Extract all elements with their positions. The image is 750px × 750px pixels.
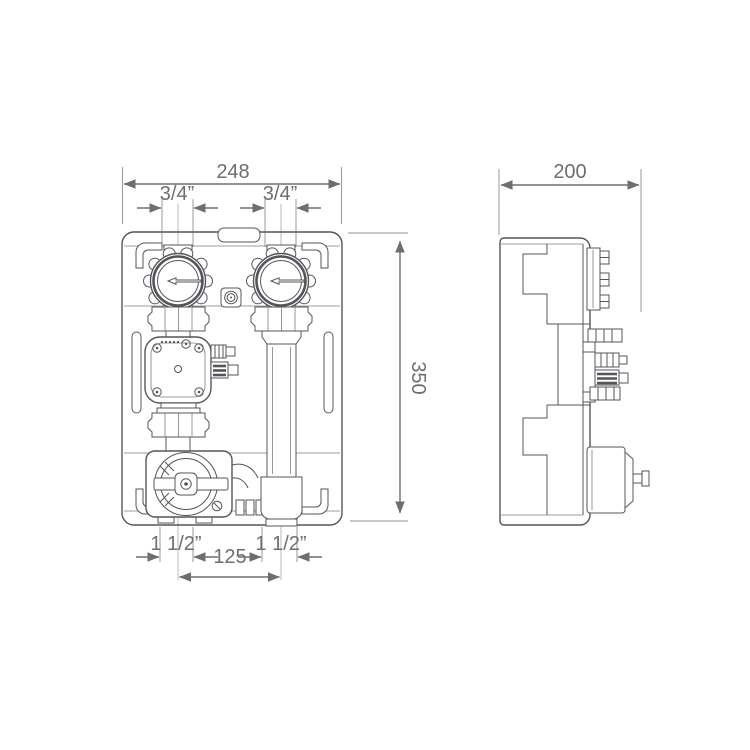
- corner-clip-bottom-right: [302, 489, 328, 514]
- ball-valve-left: [144, 245, 213, 314]
- dim-port-top-right-label: 3/4”: [263, 183, 297, 205]
- union-nut-middle: [148, 413, 209, 437]
- pump-terminal-upper: [211, 345, 235, 358]
- valve-cap-side: [587, 248, 609, 310]
- dim-port-bottom-left: 1 1/2”: [136, 527, 218, 562]
- pipe-elbow: [261, 477, 302, 519]
- side-view: 200: [499, 161, 649, 525]
- return-pipe: [261, 331, 302, 526]
- drawing-canvas: 248 3/4” 3/4” 350: [0, 0, 750, 750]
- insulation-casing-side: [500, 238, 590, 525]
- dim-port-top-left: 3/4”: [137, 183, 218, 247]
- slot-right: [324, 332, 333, 413]
- pump-inlet-pipe: [166, 437, 190, 451]
- pump-flange: [157, 403, 200, 413]
- handle-notch: [218, 228, 260, 242]
- shell-step-lower: [523, 405, 547, 515]
- mounting-screw: [221, 288, 241, 307]
- pump-terminal-lower: [211, 362, 238, 378]
- front-view: 248 3/4” 3/4” 350: [122, 161, 429, 580]
- dim-height-350: 350: [348, 233, 429, 521]
- dim-height-label: 350: [407, 361, 429, 394]
- mixing-valve: [146, 451, 232, 523]
- dim-width-248: 248: [123, 161, 342, 224]
- dim-port-bottom-right: 1 1/2”: [238, 527, 322, 562]
- dim-port-bottom-left-label: 1 1/2”: [150, 533, 201, 555]
- dim-port-spacing-label: 125: [213, 546, 246, 568]
- union-nut-top-right: [251, 307, 312, 331]
- pump-head-side: [583, 329, 628, 402]
- valve-outlet-bend: [232, 464, 262, 515]
- mixing-valve-side: [587, 447, 649, 513]
- technical-drawing: 248 3/4” 3/4” 350: [0, 0, 750, 750]
- dim-depth-label: 200: [553, 161, 586, 183]
- dim-width-label: 248: [216, 161, 249, 183]
- valve-shaft: [633, 474, 642, 483]
- shell-step-upper: [523, 244, 547, 324]
- union-nut-top-left: [148, 307, 209, 331]
- dim-port-top-left-label: 3/4”: [160, 183, 194, 205]
- ball-valve-right: [247, 245, 316, 314]
- dim-port-bottom-right-label: 1 1/2”: [255, 533, 306, 555]
- slot-left: [132, 332, 141, 413]
- circulation-pump: [145, 331, 238, 403]
- dim-depth-200: 200: [499, 161, 641, 312]
